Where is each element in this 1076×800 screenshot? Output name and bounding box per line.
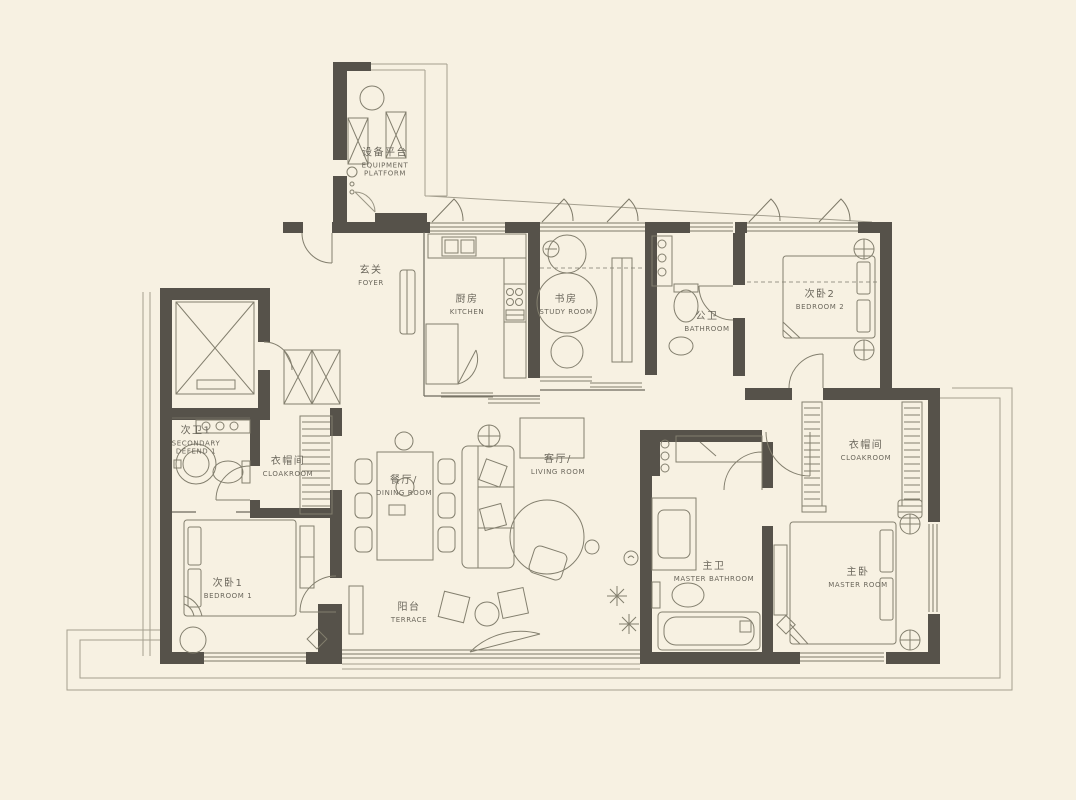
floorplan-drawing [0,0,1076,800]
furniture [174,86,922,653]
dashed-lines [540,268,878,282]
floorplan-canvas: 设备平台 EQUIPMENT PLATFORM 玄关 FOYER 厨房 KITC… [0,0,1076,800]
